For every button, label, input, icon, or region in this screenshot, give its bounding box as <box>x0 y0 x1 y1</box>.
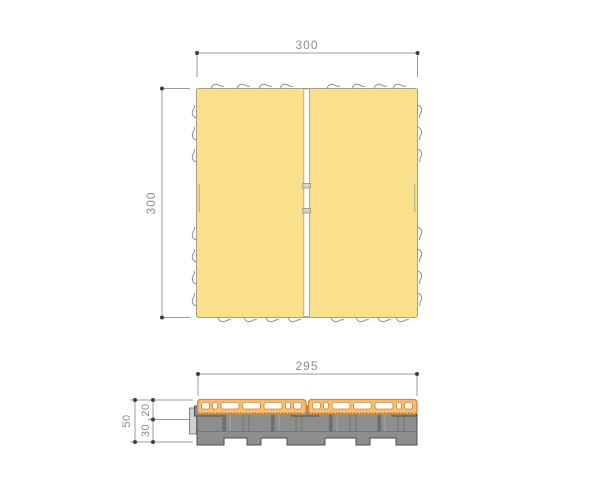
gap-connector <box>303 184 311 189</box>
drawing-canvas: 300 300 <box>0 0 600 500</box>
dim-section-width: 295 <box>196 359 419 396</box>
dim-top-width: 300 <box>195 38 420 77</box>
dim-label-total-height: 50 <box>121 414 133 427</box>
dim-label-board-height: 20 <box>140 403 152 416</box>
gap-connector <box>303 209 311 214</box>
dim-label-left-height: 300 <box>144 191 158 214</box>
section-view: 295 50 20 30 <box>121 359 419 445</box>
top-view: 300 300 <box>144 38 422 322</box>
dim-label-top-width: 300 <box>295 38 318 52</box>
dim-label-section-width: 295 <box>295 359 318 373</box>
dim-left-height: 300 <box>144 87 190 320</box>
dim-section-heights: 50 20 30 <box>121 398 193 444</box>
deck-tile-drawing: 300 300 <box>0 0 600 500</box>
tile-center-gap <box>303 89 311 317</box>
dim-label-base-height: 30 <box>140 424 152 437</box>
